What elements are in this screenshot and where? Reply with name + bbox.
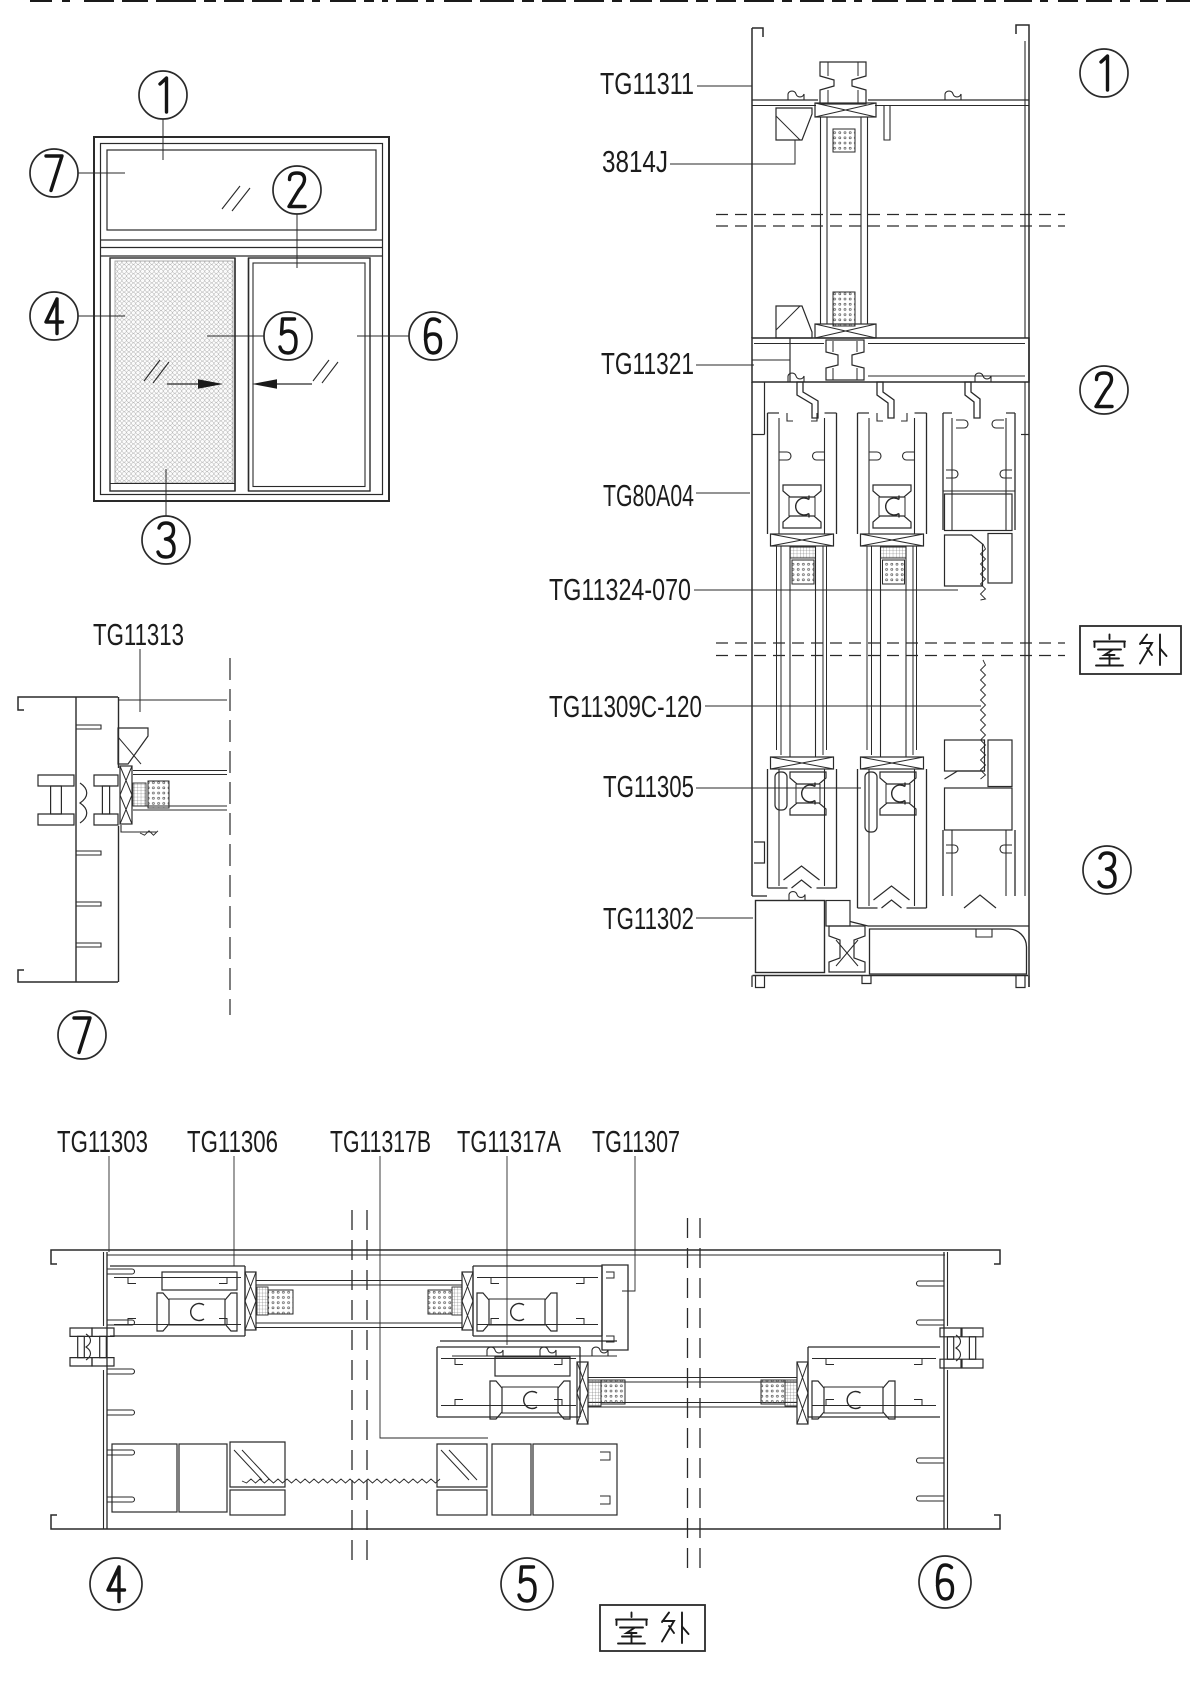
svg-text:TG11306: TG11306 (187, 1124, 278, 1159)
svg-text:TG80A04: TG80A04 (603, 478, 694, 513)
svg-text:TG11313: TG11313 (93, 617, 184, 652)
svg-text:TG11302: TG11302 (603, 901, 694, 936)
svg-text:TG11303: TG11303 (57, 1124, 148, 1159)
svg-text:TG11324-070: TG11324-070 (549, 572, 691, 607)
svg-text:TG11311: TG11311 (600, 66, 694, 101)
svg-text:3814J: 3814J (602, 144, 668, 179)
svg-text:TG11317B: TG11317B (330, 1124, 431, 1159)
svg-text:TG11307: TG11307 (592, 1124, 680, 1159)
svg-text:TG11305: TG11305 (603, 769, 694, 804)
svg-text:TG11317A: TG11317A (457, 1124, 561, 1159)
svg-text:TG11321: TG11321 (601, 346, 694, 381)
svg-text:TG11309C-120: TG11309C-120 (549, 689, 702, 724)
